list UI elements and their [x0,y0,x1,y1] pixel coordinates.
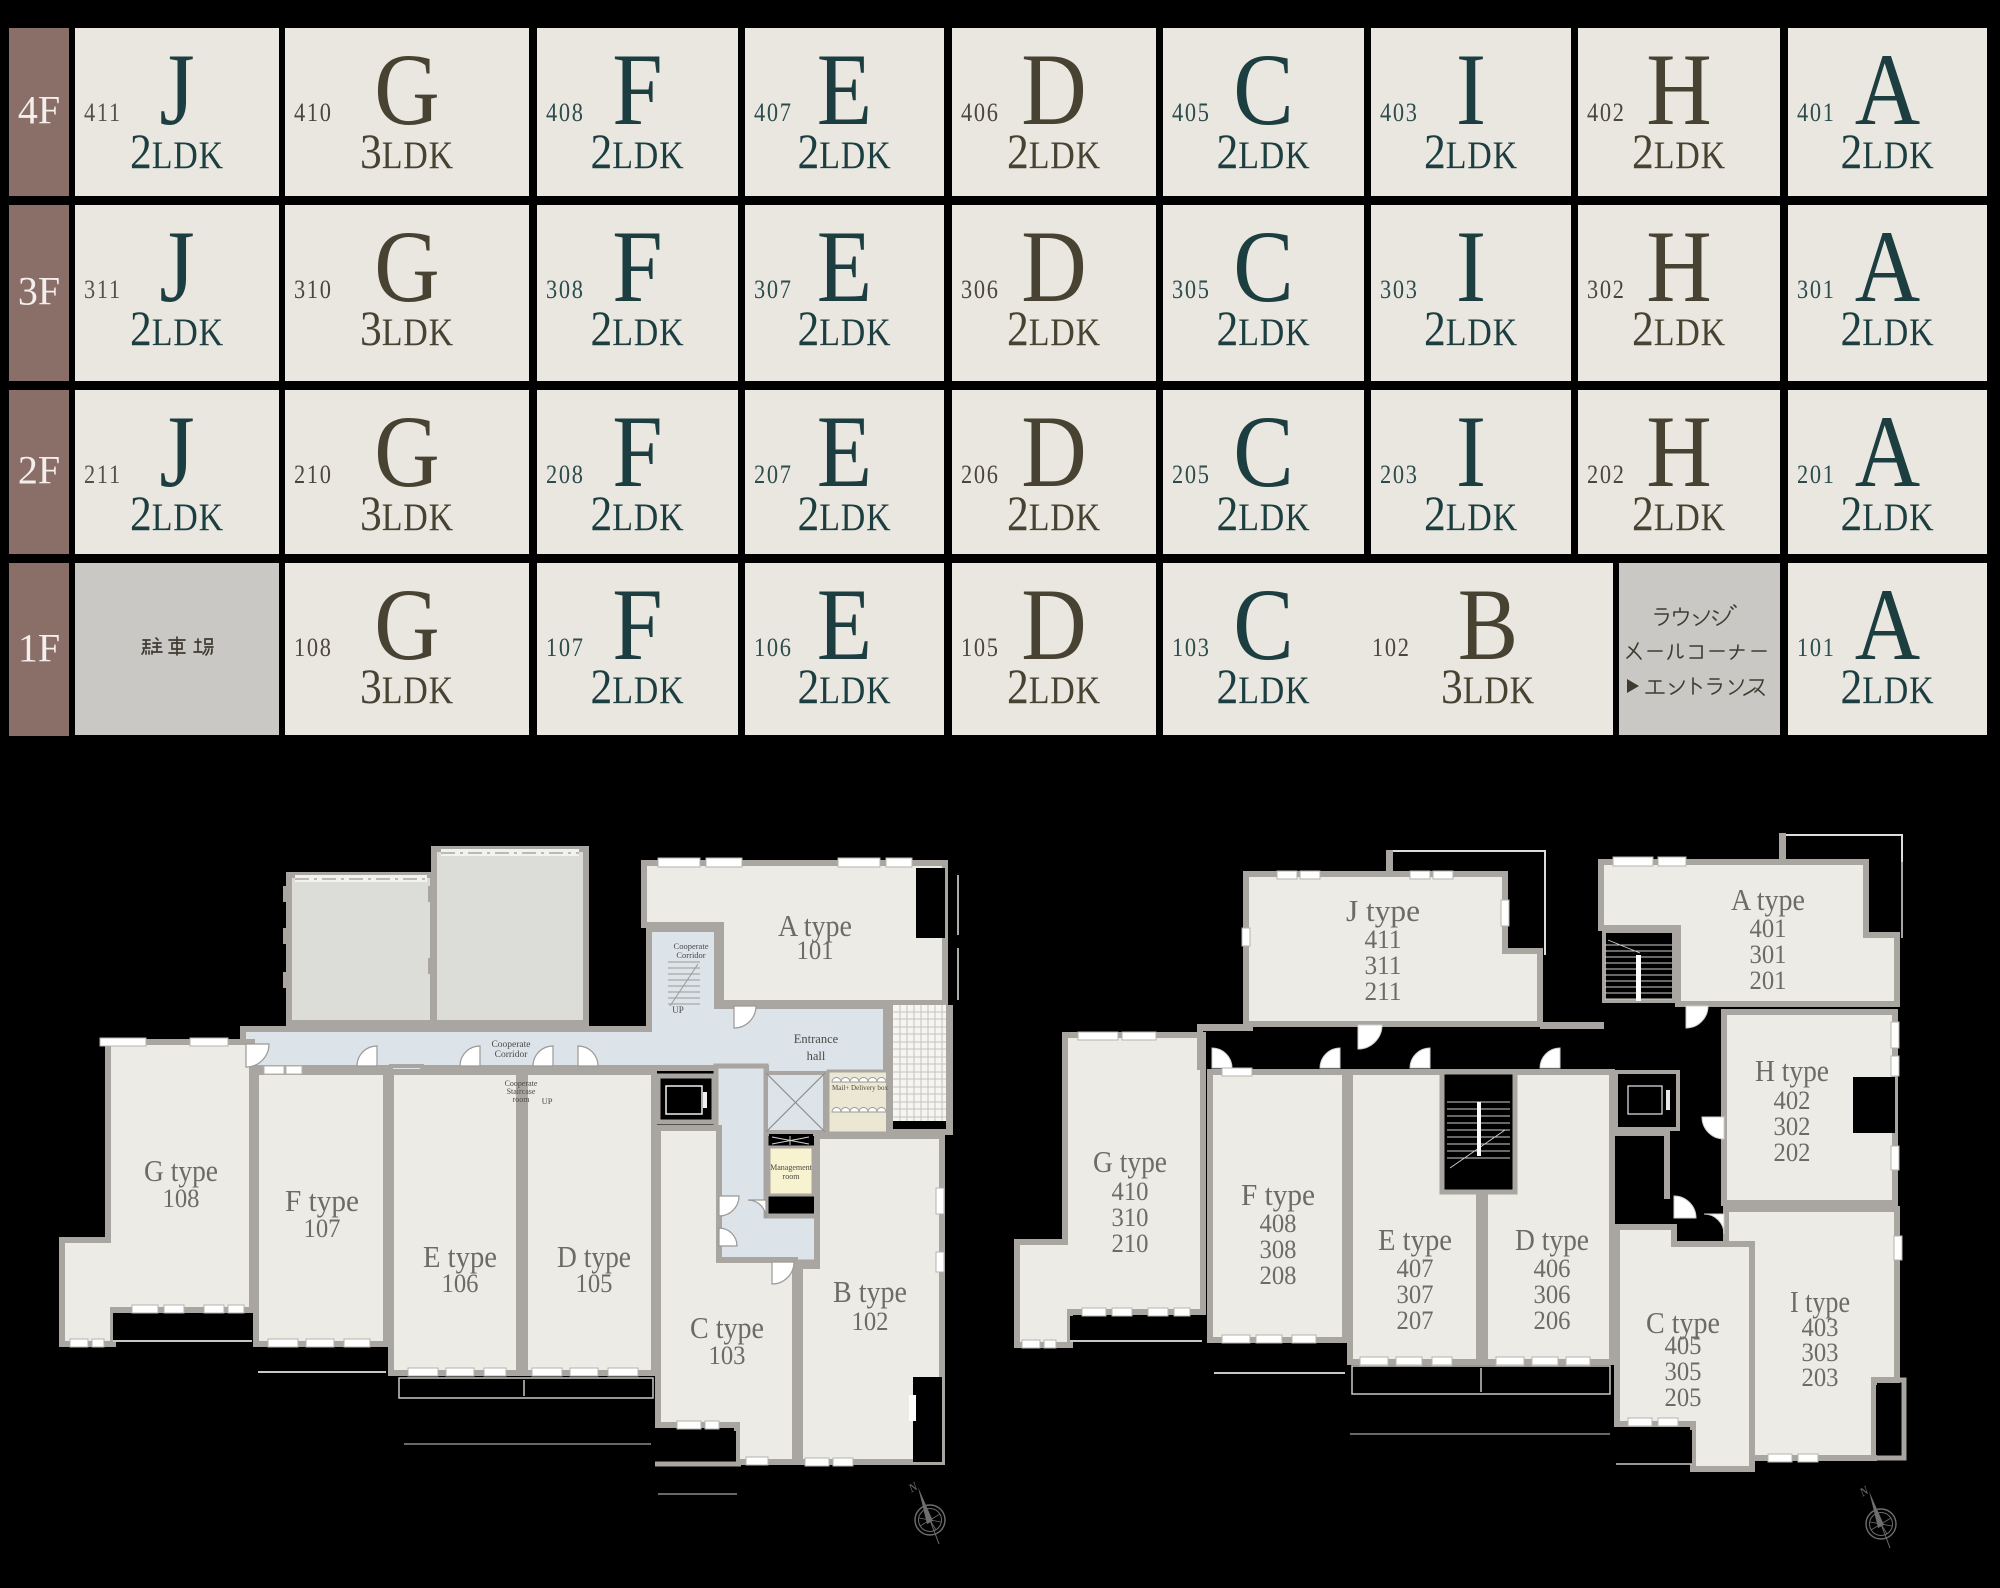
svg-text:408: 408 [1260,1209,1297,1238]
svg-text:F type: F type [1241,1177,1315,1212]
svg-text:411: 411 [1365,925,1402,954]
svg-text:Management: Management [770,1163,813,1172]
svg-text:Mail+ Delivery box: Mail+ Delivery box [832,1085,889,1092]
svg-text:J type: J type [1346,893,1420,928]
svg-text:UP: UP [542,1096,553,1106]
svg-text:311: 311 [1365,951,1402,980]
svg-text:C type: C type [690,1310,764,1345]
svg-text:410: 410 [1112,1177,1149,1206]
svg-text:A type: A type [1731,882,1805,917]
svg-text:302: 302 [1774,1112,1811,1141]
svg-text:211: 211 [1365,977,1402,1006]
svg-text:Corridor: Corridor [676,950,705,960]
svg-text:106: 106 [442,1269,479,1298]
svg-text:103: 103 [709,1341,746,1370]
svg-text:305: 305 [1665,1357,1702,1386]
svg-text:D type: D type [1515,1222,1589,1257]
svg-text:206: 206 [1534,1306,1571,1335]
svg-text:405: 405 [1665,1331,1702,1360]
svg-text:101: 101 [797,936,834,965]
svg-text:105: 105 [576,1269,613,1298]
svg-text:Entrance: Entrance [794,1032,839,1046]
svg-text:210: 210 [1112,1229,1149,1258]
svg-text:208: 208 [1260,1261,1297,1290]
svg-text:room: room [783,1172,801,1181]
svg-text:UP: UP [672,1005,684,1015]
svg-text:308: 308 [1260,1235,1297,1264]
svg-text:B type: B type [833,1274,907,1309]
svg-text:301: 301 [1750,940,1787,969]
svg-text:310: 310 [1112,1203,1149,1232]
svg-text:107: 107 [304,1214,341,1243]
svg-text:306: 306 [1534,1280,1571,1309]
svg-text:H type: H type [1755,1053,1829,1088]
svg-text:402: 402 [1774,1086,1811,1115]
svg-text:407: 407 [1397,1254,1434,1283]
svg-text:F type: F type [285,1183,359,1218]
svg-text:E type: E type [1378,1222,1452,1257]
svg-text:307: 307 [1397,1280,1434,1309]
svg-text:202: 202 [1774,1138,1811,1167]
svg-text:Corridor: Corridor [495,1050,529,1060]
svg-text:G type: G type [144,1153,218,1188]
svg-text:Cooperate: Cooperate [491,1040,530,1050]
svg-text:room: room [513,1095,531,1104]
svg-text:108: 108 [163,1184,200,1213]
svg-text:G type: G type [1093,1144,1167,1179]
svg-text:N: N [1856,1483,1872,1500]
svg-text:205: 205 [1665,1383,1702,1412]
svg-text:406: 406 [1534,1254,1571,1283]
svg-text:401: 401 [1750,914,1787,943]
svg-text:N: N [905,1479,921,1496]
svg-text:203: 203 [1802,1363,1839,1392]
svg-text:207: 207 [1397,1306,1434,1335]
svg-text:102: 102 [852,1307,889,1336]
svg-text:201: 201 [1750,966,1787,995]
svg-text:hall: hall [807,1049,826,1063]
